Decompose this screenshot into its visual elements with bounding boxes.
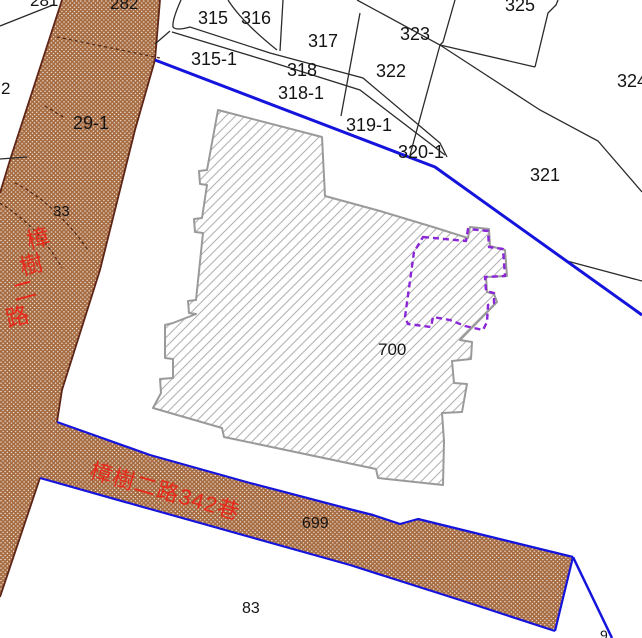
- blue-boundary-tail: [573, 557, 612, 638]
- vertical-road: [0, 0, 160, 597]
- map-canvas[interactable]: 281282229-133315316315-1317318318-1319-1…: [0, 0, 642, 638]
- building-700-footprint: [153, 110, 507, 485]
- cadastral-map-svg: [0, 0, 642, 638]
